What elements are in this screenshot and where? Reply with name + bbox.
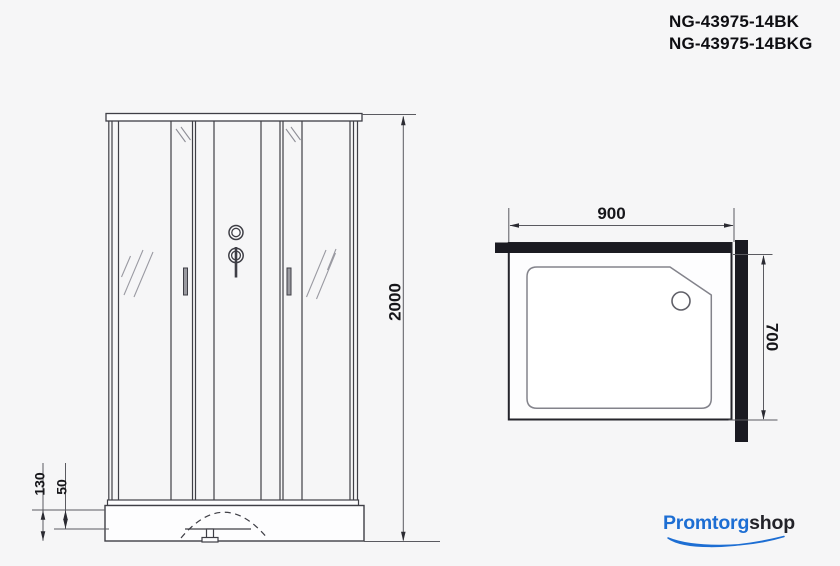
plan-view [495,240,748,442]
panel-frame-lines [109,121,358,500]
depth-label: 700 [763,323,782,351]
product-code-2: NG-43975-14BKG [669,33,813,55]
product-codes: NG-43975-14BK NG-43975-14BKG [669,11,813,55]
door-glass-ticks [176,127,301,142]
bottom-rail [108,500,359,506]
tray-base [105,506,364,542]
logo-suffix: shop [749,512,795,534]
drain-hole [672,292,690,310]
logo-swoosh-icon [665,535,787,552]
shower-tray-plan [527,267,711,408]
width-label: 900 [597,204,625,223]
technical-drawing: 2000 130 50 900 [0,0,840,566]
shop-logo-text: Promtorgshop [663,512,813,535]
door-handle-right [287,268,291,295]
logo-brand: Promtorg [663,512,749,534]
product-drawing-page: 2000 130 50 900 [0,0,840,566]
back-wall-top [495,243,731,254]
glass-reflection-right [307,249,337,299]
tray-height-label: 130 [32,472,48,496]
door-handle-left [184,268,188,295]
height-label: 2000 [386,283,405,321]
front-elevation-view [105,114,364,543]
dimension-height: 2000 [362,115,440,542]
dimension-width: 900 [509,204,734,242]
shower-mixer-fixture [229,226,243,278]
shop-logo: Promtorgshop [663,512,813,556]
back-wall-right [735,240,748,442]
dimension-tray: 130 50 [32,463,110,541]
glass-reflection-left [122,250,154,297]
cabin-top-bar [106,114,362,122]
tray-clearance-label: 50 [54,479,70,495]
product-code-1: NG-43975-14BK [669,11,813,33]
